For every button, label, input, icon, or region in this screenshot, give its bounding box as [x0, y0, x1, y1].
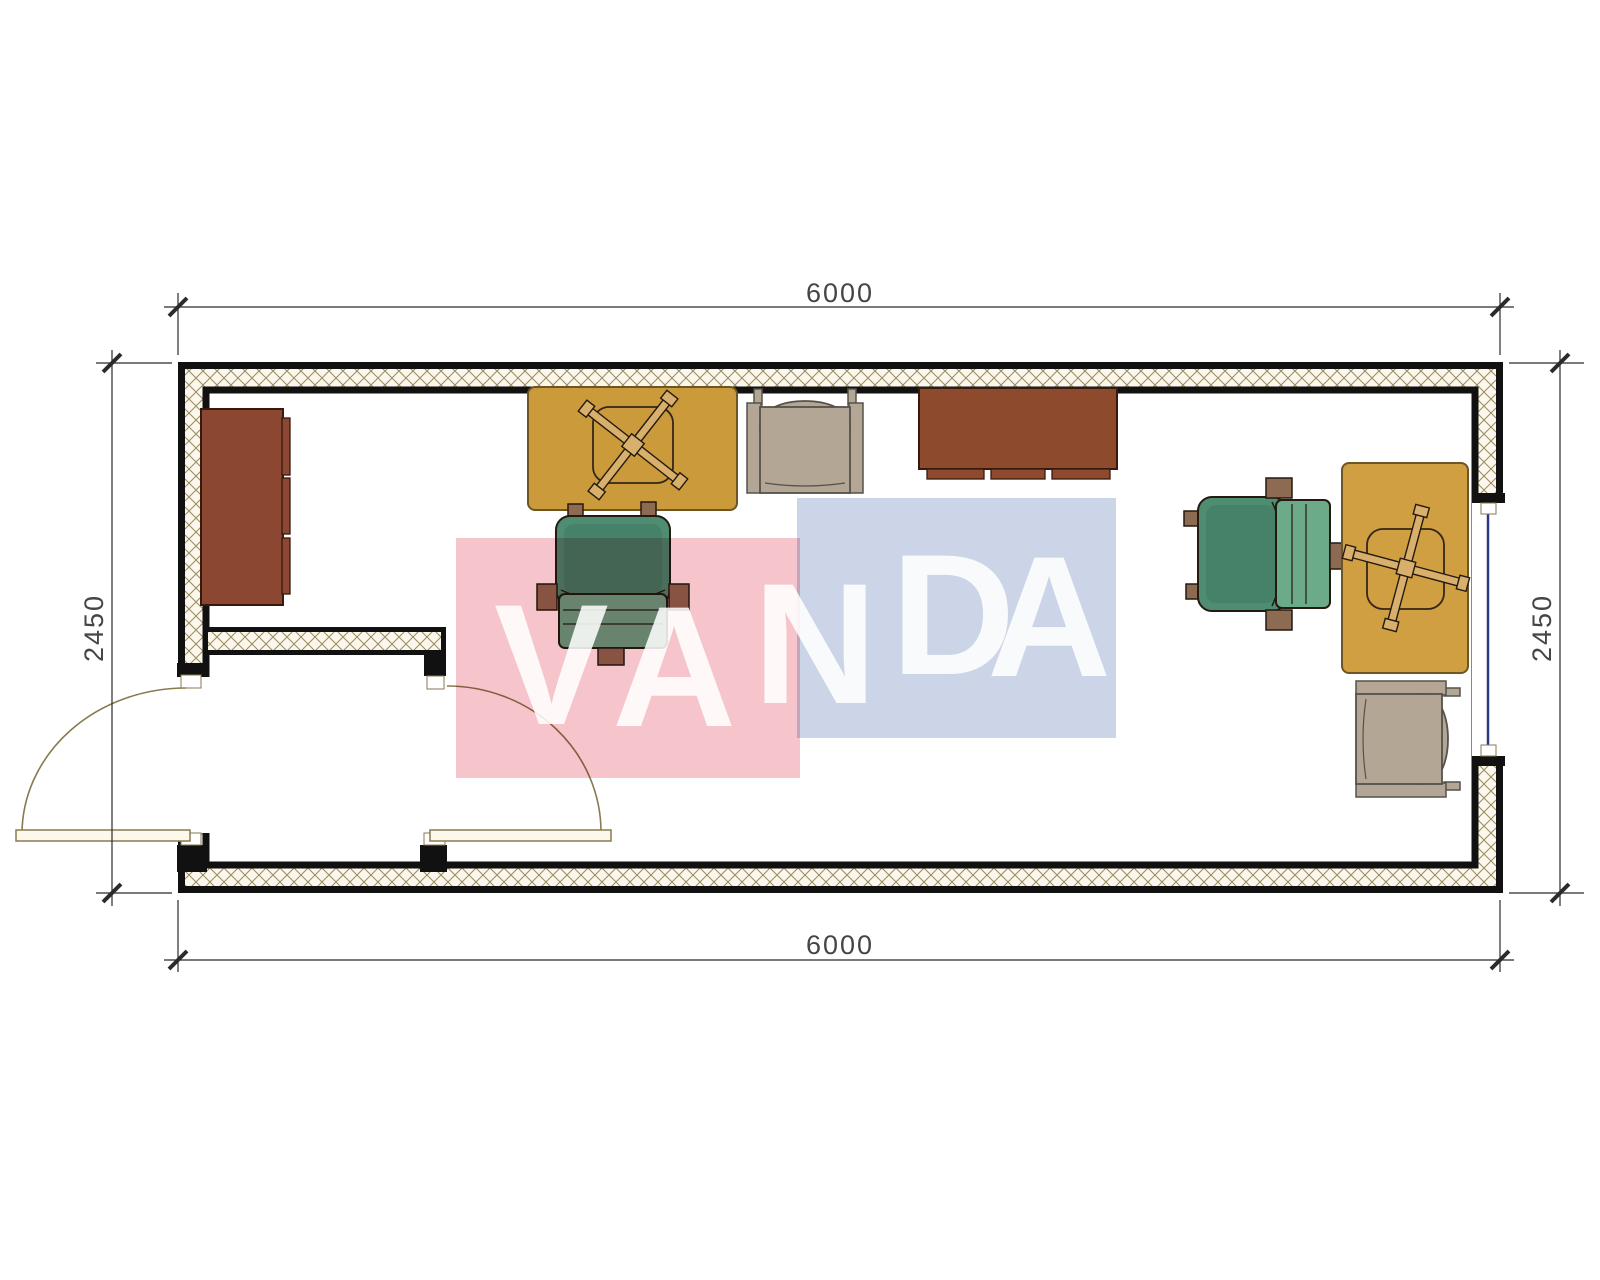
watermark-letter: A: [987, 521, 1111, 713]
vanda-watermark: V A N D A: [456, 498, 1116, 778]
watermark-letter: A: [612, 571, 736, 763]
wall-jamb-block: [177, 845, 207, 872]
wall-end-cap: [1474, 756, 1505, 766]
wall-end-cap: [1474, 493, 1505, 503]
watermark-letter: N: [753, 548, 877, 740]
door-leaf-exterior: [16, 830, 190, 841]
dimension-label-left: 2450: [79, 594, 109, 662]
wall-jamb-block: [420, 845, 447, 872]
vestibule-partition: [206, 630, 444, 653]
desk-right: [1328, 463, 1485, 673]
watermark-letter: V: [494, 569, 609, 761]
task-chair-right: [1184, 478, 1347, 630]
wall-cabinet-left: [201, 409, 290, 605]
window-opening: [1472, 503, 1507, 756]
door-leaf-interior: [430, 830, 611, 841]
left-door-opening: [173, 677, 212, 833]
dimension-label-right: 2450: [1527, 594, 1557, 662]
partition-end-jamb: [424, 650, 446, 676]
door-swing-arc: [22, 688, 186, 834]
dimension-label-bottom: 6000: [806, 930, 874, 960]
window-jamb: [1481, 503, 1496, 514]
sideboard-top: [919, 388, 1117, 479]
dimension-label-top: 6000: [806, 278, 874, 308]
floor-plan-drawing: V A N D A: [0, 0, 1600, 1280]
floor-plan-page: V A N D A: [0, 0, 1600, 1280]
window-jamb: [1481, 745, 1496, 756]
door-jamb: [427, 676, 444, 689]
door-jamb: [181, 675, 201, 688]
